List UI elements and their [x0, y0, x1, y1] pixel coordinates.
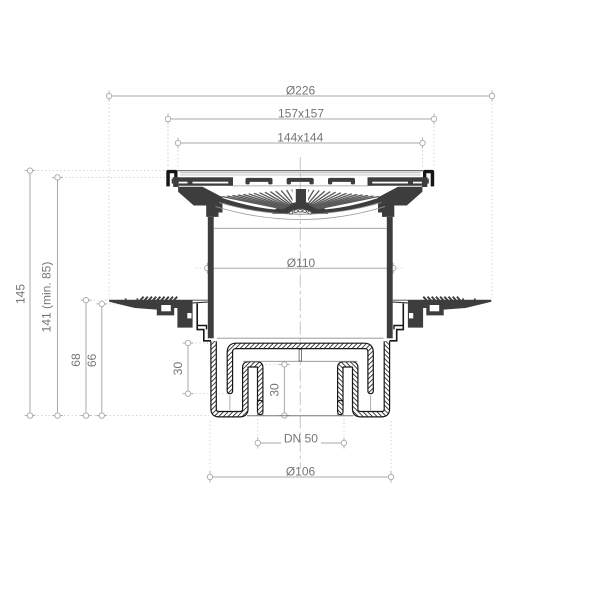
svg-text:66: 66 — [85, 354, 99, 368]
svg-text:144x144: 144x144 — [277, 130, 323, 144]
svg-text:Ø226: Ø226 — [286, 83, 316, 97]
svg-text:141 (min. 85): 141 (min. 85) — [40, 262, 54, 333]
svg-text:Ø106: Ø106 — [286, 464, 316, 478]
svg-text:68: 68 — [69, 353, 83, 367]
svg-text:145: 145 — [14, 284, 28, 304]
svg-text:157x157: 157x157 — [278, 106, 324, 120]
svg-text:30: 30 — [171, 362, 185, 376]
svg-text:DN 50: DN 50 — [284, 432, 318, 446]
svg-text:Ø110: Ø110 — [287, 256, 316, 270]
svg-text:30: 30 — [267, 383, 281, 397]
